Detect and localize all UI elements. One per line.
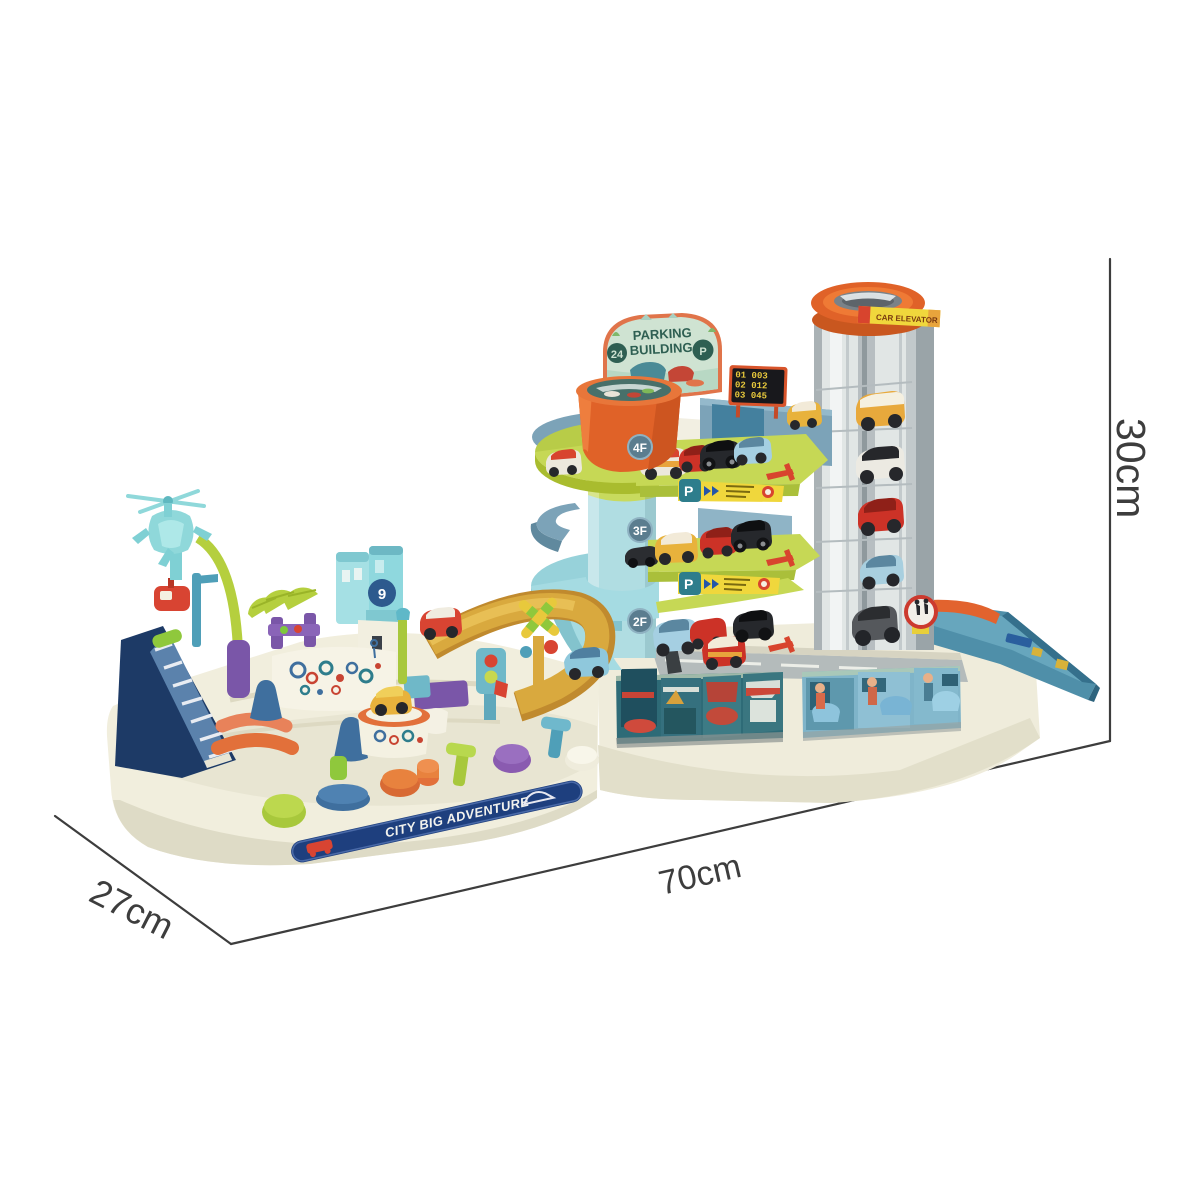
svg-text:03 045: 03 045 <box>734 390 767 401</box>
svg-text:3F: 3F <box>633 524 647 538</box>
svg-text:P: P <box>684 576 693 592</box>
svg-text:9: 9 <box>378 586 386 603</box>
svg-text:2F: 2F <box>633 615 647 629</box>
svg-text:24: 24 <box>611 349 624 361</box>
svg-text:4F: 4F <box>633 441 647 455</box>
svg-text:P: P <box>699 346 706 358</box>
svg-text:P: P <box>684 483 693 499</box>
svg-text:30cm: 30cm <box>1108 418 1154 518</box>
